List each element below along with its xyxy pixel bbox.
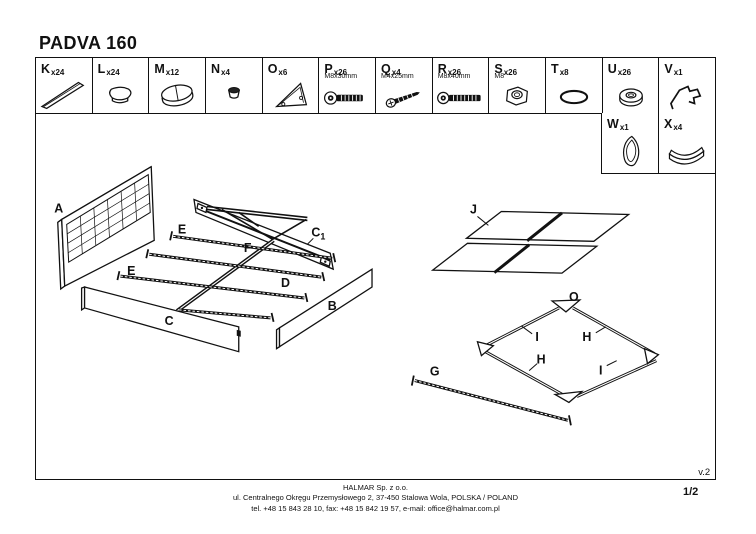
footer-company: HALMAR Sp. z o.o. xyxy=(35,483,716,493)
part-cell-w: Wx1 xyxy=(602,113,658,173)
part-cell-x: Xx4 xyxy=(658,113,715,173)
bolt-m8x40-icon xyxy=(436,84,486,112)
parts-table-row2: Wx1 Xx4 xyxy=(601,113,716,174)
bolt-m8x30-icon xyxy=(322,84,372,112)
part-id: U xyxy=(608,62,617,76)
corner-bracket-icon xyxy=(266,78,316,112)
part-label: Tx8 xyxy=(551,60,569,78)
part-label: Vx1 xyxy=(664,60,682,78)
part-spec: M8x40mm xyxy=(438,73,471,80)
part-cell-k: Kx24 xyxy=(36,58,93,113)
part-label: Wx1 xyxy=(607,115,629,133)
label-rail-c1: C1 xyxy=(311,225,325,241)
part-label: Ox6 xyxy=(268,60,288,78)
label-side-panel-b: B xyxy=(328,299,337,313)
part-id: W xyxy=(607,117,619,131)
page-title: PADVA 160 xyxy=(39,33,137,54)
part-cell-p: Px26 M8x30mm xyxy=(319,58,376,113)
part-id: N xyxy=(211,62,220,76)
screw-m4x25-icon xyxy=(379,84,429,112)
part-cell-v: Vx1 xyxy=(659,58,715,113)
bottom-boards-drawing xyxy=(433,211,629,273)
label-headboard-a: A xyxy=(54,201,63,215)
part-count: x4 xyxy=(673,123,682,132)
part-label: Ux26 xyxy=(608,60,631,78)
part-id: T xyxy=(551,62,559,76)
footer: HALMAR Sp. z o.o. ul. Centralnego Okręgu… xyxy=(35,483,716,514)
ring-icon xyxy=(549,82,599,112)
part-spec: M8 xyxy=(494,73,504,80)
label-frame-h-2: H xyxy=(537,353,546,367)
curved-pad-icon xyxy=(663,136,711,172)
label-beam-f: F xyxy=(244,241,252,255)
part-spec: M8x30mm xyxy=(324,73,357,80)
label-c1-main: C xyxy=(311,225,320,239)
part-spec: M4x25mm xyxy=(381,73,414,80)
part-label: Nx4 xyxy=(211,60,230,78)
label-rail-g: G xyxy=(430,365,440,379)
part-count: x12 xyxy=(166,68,179,77)
part-label: Xx4 xyxy=(664,115,682,133)
label-bracket-o: O xyxy=(569,290,579,304)
part-count: x24 xyxy=(106,68,119,77)
label-slat-e-lower: E xyxy=(127,264,135,278)
label-slat-e-upper: E xyxy=(178,222,186,236)
hex-nut-icon xyxy=(492,82,542,112)
label-slat-d: D xyxy=(281,276,290,290)
part-count: x6 xyxy=(278,68,287,77)
oval-pad-icon xyxy=(152,78,202,112)
part-label: Lx24 xyxy=(98,60,120,78)
part-count: x26 xyxy=(504,68,517,77)
part-id: X xyxy=(664,117,672,131)
label-front-panel-c: C xyxy=(165,314,174,328)
part-cell-m: Mx12 xyxy=(149,58,206,113)
lift-beam-drawing xyxy=(177,240,273,311)
part-count: x1 xyxy=(620,123,629,132)
part-id: V xyxy=(664,62,672,76)
part-cell-l: Lx24 xyxy=(93,58,150,113)
part-cell-t: Tx8 xyxy=(546,58,603,113)
page-number: 1/2 xyxy=(683,486,698,498)
slat-icon xyxy=(39,76,89,112)
part-cell-r: Rx26 M8x40mm xyxy=(433,58,490,113)
part-count: x1 xyxy=(674,68,683,77)
headboard-drawing xyxy=(58,167,154,289)
part-id: K xyxy=(41,62,50,76)
part-cell-n: Nx4 xyxy=(206,58,263,113)
footer-contact: tel. +48 15 843 28 10, fax: +48 15 842 1… xyxy=(35,504,716,514)
part-id: L xyxy=(98,62,106,76)
part-count: x8 xyxy=(560,68,569,77)
part-cell-s: Sx26 M8 xyxy=(489,58,546,113)
part-count: x26 xyxy=(618,68,631,77)
label-boards-j: J xyxy=(470,202,477,216)
version-label: v.2 xyxy=(698,467,710,478)
part-cell-u: Ux26 xyxy=(603,58,660,113)
part-count: x4 xyxy=(221,68,230,77)
footer-address: ul. Centralnego Okręgu Przemysłowego 2, … xyxy=(35,493,716,503)
part-cell-o: Ox6 xyxy=(263,58,320,113)
rail-g-drawing xyxy=(412,376,571,426)
part-id: O xyxy=(268,62,278,76)
corner-pad-icon xyxy=(96,78,146,112)
slat-frame-drawing xyxy=(477,300,658,402)
assembly-key-icon xyxy=(662,78,712,112)
label-frame-h-1: H xyxy=(582,330,591,344)
parts-table: Kx24 Lx24 Mx12 Nx4 Ox6 xyxy=(35,57,716,114)
washer-icon xyxy=(606,82,656,112)
strap-loop-icon xyxy=(608,132,652,172)
label-c1-sub: 1 xyxy=(320,231,325,241)
plug-icon xyxy=(209,78,259,112)
part-cell-q: Qx4 M4x25mm xyxy=(376,58,433,113)
part-label: Mx12 xyxy=(154,60,179,78)
front-panel-drawing xyxy=(82,287,241,352)
label-frame-i-2: I xyxy=(599,364,602,378)
part-id: M xyxy=(154,62,164,76)
label-frame-i-1: I xyxy=(535,330,538,344)
